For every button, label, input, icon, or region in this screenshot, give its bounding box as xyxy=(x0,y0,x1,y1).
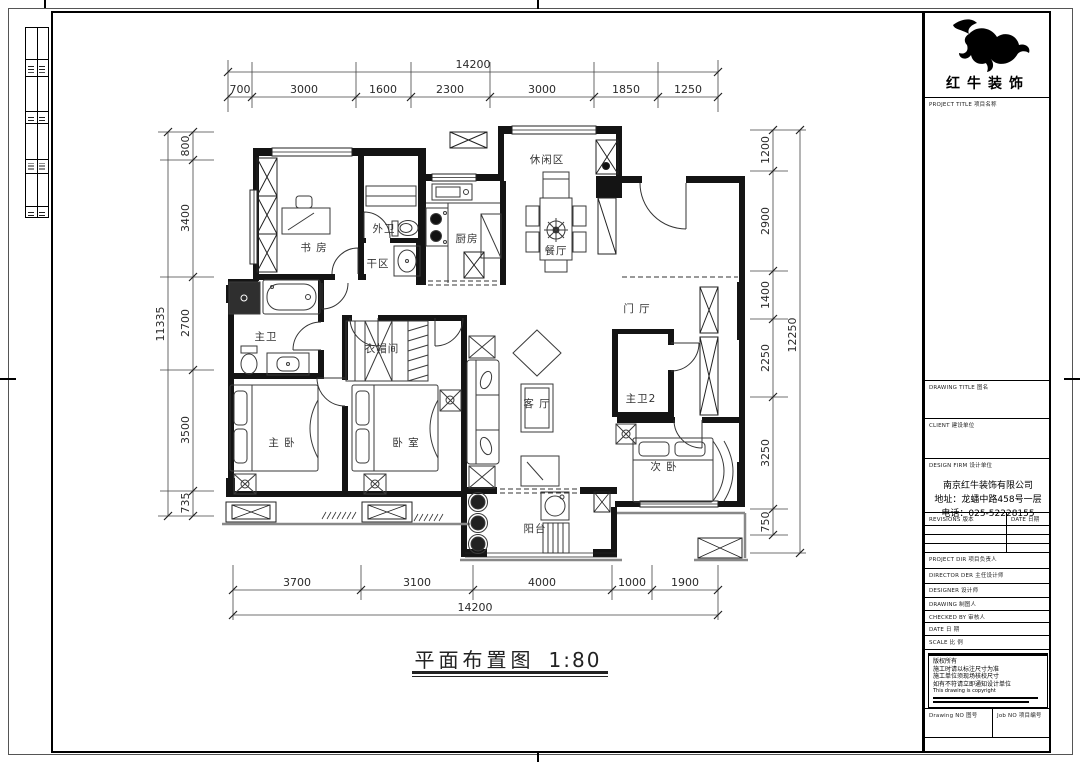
firm-address: 地址：龙蟠中路458号一层 xyxy=(925,493,1051,507)
firm-name: 南京红牛装饰有限公司 xyxy=(925,479,1051,493)
room-label-living: 客 厅 xyxy=(523,397,550,410)
dim-value: 1200 xyxy=(759,136,772,164)
second-bed-door xyxy=(674,420,702,448)
project-title-label: PROJECT TITLE 项目名称 xyxy=(925,98,1051,108)
title-underline-2 xyxy=(412,676,608,677)
master-bath-furniture xyxy=(229,280,320,375)
room-label-master-bed: 主 卧 xyxy=(268,436,295,449)
dim-value: 3100 xyxy=(403,576,431,589)
dim-value: 1400 xyxy=(759,281,772,309)
study-door xyxy=(332,248,358,274)
drawing-no-label: Drawing NO 图号 xyxy=(925,709,977,719)
project-dir-label: PROJECT DIR 项目负责人 xyxy=(925,553,1051,563)
checked-label: CHECKED BY 审核人 xyxy=(925,611,1051,621)
dim-value: 3000 xyxy=(528,83,556,96)
dim-value: 735 xyxy=(179,493,192,514)
dim-value: 2700 xyxy=(179,309,192,337)
trim-mark-left xyxy=(0,378,16,380)
drawing-title-label: DRAWING TITLE 图名 xyxy=(925,381,1051,391)
rednull-bull-logo xyxy=(947,17,1033,73)
room-label-guest-bath: 外卫 xyxy=(373,223,396,235)
bedroom-door xyxy=(435,318,463,346)
design-firm-box: DESIGN FIRM 设计单位 南京红牛装饰有限公司 地址：龙蟠中路458号一… xyxy=(925,458,1051,512)
room-label-master-bath2: 主卫2 xyxy=(626,393,657,405)
designer-label: DESIGNER 设计师 xyxy=(925,584,1051,594)
dim-value: 14200 xyxy=(456,58,491,71)
director-label: DIRECTOR DER 主任设计师 xyxy=(925,569,1051,579)
trim-mark-bottom xyxy=(537,753,539,762)
drawing-box: DRAWING 制图人 xyxy=(925,597,1051,610)
revisions-label: REVISIONS 版本 xyxy=(925,513,974,523)
dim-value: 700 xyxy=(230,83,251,96)
cloak-door xyxy=(350,318,378,346)
dim-value: 1850 xyxy=(612,83,640,96)
checked-box: CHECKED BY 审核人 xyxy=(925,610,1051,622)
room-label-second-bed: 次 卧 xyxy=(650,460,677,473)
master-bath2-door xyxy=(671,343,699,371)
plan-scale: 1:80 xyxy=(549,648,602,672)
dim-top-text: 14200 700 3000 1600 2300 3000 1850 1250 xyxy=(230,58,703,96)
job-no-label: Job NO 项目编号 xyxy=(993,709,1042,719)
dim-value: 3000 xyxy=(290,83,318,96)
project-title-box: PROJECT TITLE 项目名称 xyxy=(925,97,1051,380)
trim-mark-top xyxy=(537,0,539,9)
revisions-box: REVISIONS 版本 DATE 日期 xyxy=(925,512,1051,552)
room-label-study: 书 房 xyxy=(300,241,327,254)
room-label-balcony: 阳台 xyxy=(524,522,547,535)
title-block: 红牛装饰 PROJECT TITLE 项目名称 DRAWING TITLE 图名… xyxy=(922,11,1051,753)
drawing-title-box: DRAWING TITLE 图名 xyxy=(925,380,1051,418)
plan-title-text: 平面布置图 xyxy=(415,648,535,672)
drawing-sheet: 红牛装饰 PROJECT TITLE 项目名称 DRAWING TITLE 图名… xyxy=(0,0,1080,762)
dim-value: 3250 xyxy=(759,439,772,467)
room-label-master-bath: 主卫 xyxy=(255,331,278,343)
trim-mark-right xyxy=(1064,378,1080,380)
signature-strip xyxy=(25,27,49,218)
study-furniture xyxy=(282,196,330,234)
note-line: This drawing is copyright xyxy=(933,688,1047,695)
room-label-dry-area: 干区 xyxy=(367,258,390,270)
dim-value: 1250 xyxy=(674,83,702,96)
dim-value: 3700 xyxy=(283,576,311,589)
dim-value: 2250 xyxy=(759,344,772,372)
drawing-label: DRAWING 制图人 xyxy=(925,598,1051,608)
dim-value: 3500 xyxy=(179,416,192,444)
client-label: CLIENT 建设单位 xyxy=(925,419,1051,429)
balcony-furniture xyxy=(469,492,570,554)
dim-value: 11335 xyxy=(154,307,167,342)
dim-value: 12250 xyxy=(786,318,799,353)
drawing-no-box: Drawing NO 图号 Job NO 项目编号 xyxy=(925,708,1051,737)
title-underline xyxy=(412,671,608,674)
room-label-foyer: 门 厅 xyxy=(623,302,650,315)
client-box: CLIENT 建设单位 xyxy=(925,418,1051,458)
date-box: DATE 日 期 xyxy=(925,622,1051,635)
master-bed-door xyxy=(317,378,345,406)
entry-door xyxy=(640,183,686,229)
note-line: 施工时请以标注尺寸为准 xyxy=(933,666,1047,674)
dim-right-text: 12250 1200 2900 1400 2250 3250 750 xyxy=(759,136,799,533)
dim-left-text: 11335 800 3400 2700 3500 735 xyxy=(154,136,192,514)
room-label-cloak: 衣帽间 xyxy=(365,342,400,355)
scale-label: SCALE 比 例 xyxy=(925,636,1051,646)
note-line: 版权所有 xyxy=(933,658,1047,666)
dim-value: 1000 xyxy=(618,576,646,589)
trim-mark-topleft xyxy=(44,0,46,8)
dim-value: 2900 xyxy=(759,207,772,235)
copyright-notes: 版权所有 施工时请以标注尺寸为准 施工单位须现场核校尺寸 如有不符请立即通知设计… xyxy=(928,653,1048,708)
dim-value: 3400 xyxy=(179,204,192,232)
dim-value: 14200 xyxy=(458,601,493,614)
master-bath-door xyxy=(293,322,321,350)
revisions-date-label: DATE 日期 xyxy=(1007,513,1039,523)
sliding-doors xyxy=(428,277,738,493)
note-line: 施工单位须现场核校尺寸 xyxy=(933,673,1047,681)
designer-box: DESIGNER 设计师 xyxy=(925,583,1051,597)
scale-box: SCALE 比 例 xyxy=(925,635,1051,649)
hall-door xyxy=(322,283,348,309)
dining-furniture xyxy=(526,172,586,272)
room-label-dining: 餐厅 xyxy=(545,244,568,257)
company-name: 红牛装饰 xyxy=(925,73,1051,93)
logo-box: 红牛装饰 xyxy=(925,11,1051,97)
doors xyxy=(293,183,702,448)
dim-bottom-text: 14200 3700 3100 4000 1000 1900 xyxy=(283,576,699,614)
walls xyxy=(226,126,745,557)
dim-value: 1600 xyxy=(369,83,397,96)
date-label: DATE 日 期 xyxy=(925,623,1051,633)
room-label-leisure: 休闲区 xyxy=(530,153,565,166)
dim-value: 800 xyxy=(179,136,192,157)
room-label-kitchen: 厨房 xyxy=(456,232,479,245)
director-box: DIRECTOR DER 主任设计师 xyxy=(925,568,1051,583)
room-label-bedroom: 卧 室 xyxy=(392,436,419,449)
plan-title: 平面布置图1:80 xyxy=(408,644,608,673)
project-dir-box: PROJECT DIR 项目负责人 xyxy=(925,552,1051,568)
dim-value: 750 xyxy=(759,512,772,533)
dim-value: 4000 xyxy=(528,576,556,589)
floor-plan: 书 房 休闲区 厨房 餐厅 外卫 干区 主卫 门 厅 衣帽间 客 厅 主 卧 卧… xyxy=(51,11,920,753)
note-line: 如有不符请立即通知设计单位 xyxy=(933,681,1047,689)
dim-value: 1900 xyxy=(671,576,699,589)
design-firm-label: DESIGN FIRM 设计单位 xyxy=(925,459,1051,469)
dim-value: 2300 xyxy=(436,83,464,96)
